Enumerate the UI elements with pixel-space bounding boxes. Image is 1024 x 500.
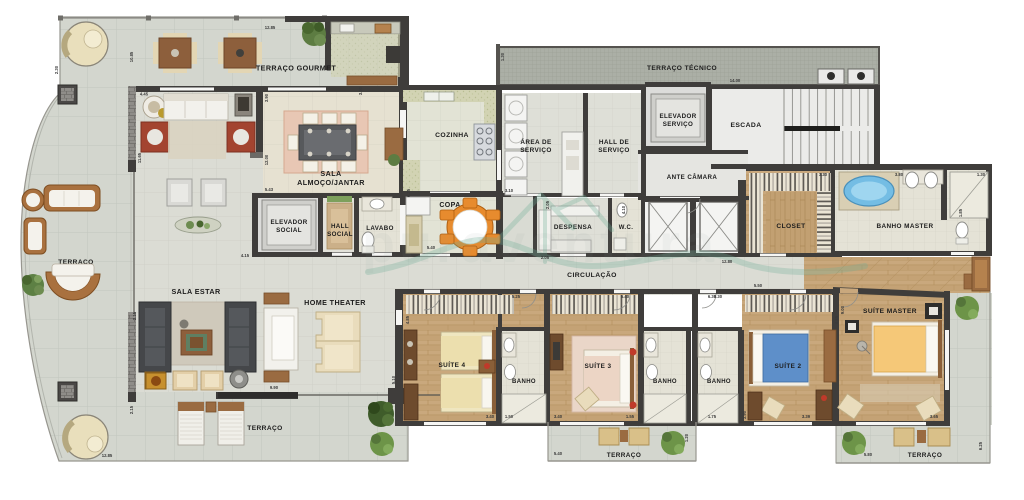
svg-text:6.25: 6.25: [406, 188, 411, 197]
svg-text:14.00: 14.00: [730, 78, 741, 83]
svg-text:4.10: 4.10: [621, 205, 626, 214]
svg-text:9.90: 9.90: [270, 385, 279, 390]
svg-text:ALMOÇO/JANTAR: ALMOÇO/JANTAR: [297, 178, 365, 187]
svg-text:6.25: 6.25: [978, 441, 983, 450]
svg-text:SUÍTE 4: SUÍTE 4: [439, 360, 466, 369]
svg-text:SOCIAL: SOCIAL: [276, 227, 302, 234]
svg-text:puraventura: puraventura: [362, 214, 718, 274]
svg-text:5.40: 5.40: [621, 294, 630, 299]
svg-text:4.85: 4.85: [405, 315, 410, 324]
svg-text:10.85: 10.85: [129, 51, 134, 62]
svg-text:BANHO: BANHO: [707, 379, 731, 385]
svg-text:SERVIÇO: SERVIÇO: [663, 121, 694, 128]
svg-text:12.85: 12.85: [102, 453, 113, 458]
svg-text:3.90: 3.90: [358, 86, 363, 95]
svg-text:2.15: 2.15: [132, 311, 137, 320]
svg-text:CLOSET: CLOSET: [776, 223, 805, 230]
svg-text:3.65: 3.65: [930, 414, 939, 419]
svg-text:TERRAÇO TÉCNICO: TERRAÇO TÉCNICO: [647, 63, 717, 72]
svg-text:12.00: 12.00: [264, 154, 269, 165]
svg-text:1.85: 1.85: [958, 208, 963, 217]
svg-text:5.80: 5.80: [864, 452, 873, 457]
svg-text:1.30: 1.30: [977, 172, 986, 177]
svg-text:5.50: 5.50: [754, 283, 763, 288]
svg-text:5.40: 5.40: [554, 451, 563, 456]
svg-text:ELEVADOR: ELEVADOR: [659, 113, 696, 120]
svg-text:ESCADA: ESCADA: [730, 122, 761, 129]
svg-text:SUÍTE 2: SUÍTE 2: [775, 361, 802, 370]
svg-text:1.75: 1.75: [708, 414, 717, 419]
svg-text:3.40: 3.40: [554, 414, 563, 419]
svg-text:SUÍTE MASTER: SUÍTE MASTER: [863, 306, 917, 315]
svg-text:SOCIAL: SOCIAL: [327, 231, 353, 238]
svg-text:2.30: 2.30: [54, 65, 59, 74]
svg-text:BANHO MASTER: BANHO MASTER: [877, 223, 934, 230]
svg-text:SERVIÇO: SERVIÇO: [598, 147, 629, 154]
svg-text:TERRAÇO: TERRAÇO: [247, 425, 282, 432]
svg-text:4.15: 4.15: [241, 253, 250, 258]
svg-text:3.39: 3.39: [802, 414, 811, 419]
svg-text:1.50: 1.50: [505, 414, 514, 419]
svg-text:1.30: 1.30: [500, 52, 505, 61]
svg-text:3.90: 3.90: [264, 93, 269, 102]
svg-text:HALL DE: HALL DE: [599, 139, 630, 146]
svg-text:COZINHA: COZINHA: [435, 132, 469, 139]
svg-text:SUÍTE 3: SUÍTE 3: [585, 361, 612, 370]
svg-text:TERRAÇO GOURMET: TERRAÇO GOURMET: [256, 64, 336, 73]
svg-text:3.80: 3.80: [895, 172, 904, 177]
svg-text:3.40: 3.40: [486, 414, 495, 419]
svg-text:BANHO: BANHO: [653, 379, 677, 385]
svg-text:2.05: 2.05: [545, 200, 550, 209]
svg-text:12.85: 12.85: [265, 25, 276, 30]
svg-text:5.10: 5.10: [391, 375, 396, 384]
svg-text:5.25: 5.25: [512, 294, 521, 299]
svg-text:1.20: 1.20: [684, 433, 689, 442]
svg-text:4.85: 4.85: [834, 315, 839, 324]
svg-text:12.80: 12.80: [722, 259, 733, 264]
svg-text:1.55: 1.55: [626, 414, 635, 419]
svg-text:ÁREA DE: ÁREA DE: [520, 137, 552, 146]
svg-text:5.40: 5.40: [427, 245, 436, 250]
svg-text:TERRAÇO: TERRAÇO: [607, 452, 641, 459]
svg-text:TERRAÇO: TERRAÇO: [908, 452, 942, 459]
svg-text:BANHO: BANHO: [512, 379, 536, 385]
svg-text:HALL: HALL: [331, 223, 349, 230]
svg-text:3.90: 3.90: [742, 410, 747, 419]
svg-text:SERVIÇO: SERVIÇO: [520, 147, 551, 154]
svg-text:9.00: 9.00: [840, 305, 845, 314]
svg-text:2.05: 2.05: [541, 255, 550, 260]
svg-text:5.43: 5.43: [265, 187, 274, 192]
svg-text:4.45: 4.45: [140, 92, 149, 97]
svg-text:HOME THEATER: HOME THEATER: [304, 298, 366, 307]
svg-text:3.10: 3.10: [505, 188, 514, 193]
svg-text:SALA: SALA: [320, 169, 341, 178]
svg-text:5.30: 5.30: [714, 294, 723, 299]
svg-text:ELEVADOR: ELEVADOR: [270, 219, 307, 226]
svg-text:11.65: 11.65: [137, 152, 142, 163]
svg-text:2.15: 2.15: [129, 405, 134, 414]
svg-text:ANTE CÂMARA: ANTE CÂMARA: [667, 174, 718, 181]
svg-text:3.30: 3.30: [819, 172, 828, 177]
svg-text:SALA ESTAR: SALA ESTAR: [171, 287, 221, 296]
